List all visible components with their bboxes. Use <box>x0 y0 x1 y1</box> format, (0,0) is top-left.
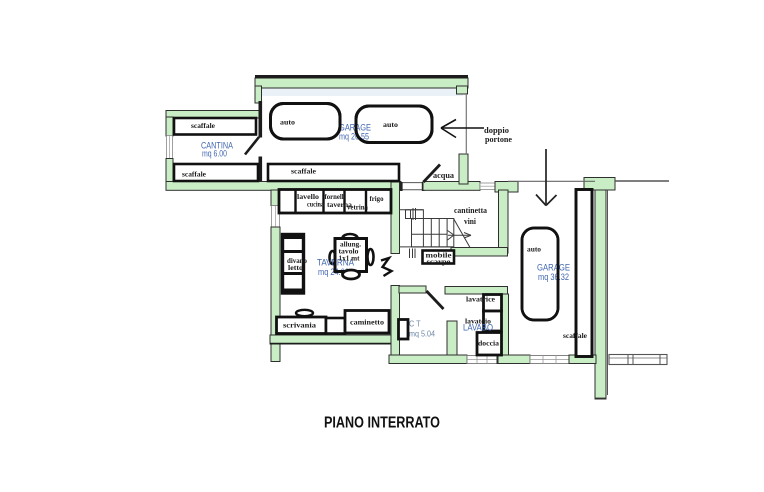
svg-text:mq 5.04: mq 5.04 <box>409 328 435 338</box>
svg-text:acqua: acqua <box>433 170 455 180</box>
svg-text:auto: auto <box>527 245 541 254</box>
svg-text:cucina: cucina <box>307 200 324 208</box>
svg-text:scarpe: scarpe <box>427 257 452 266</box>
svg-text:letto: letto <box>288 264 303 272</box>
svg-text:auto: auto <box>280 118 295 127</box>
svg-text:vetrina: vetrina <box>347 203 368 211</box>
svg-text:scaffale: scaffale <box>182 170 207 179</box>
svg-text:lavatrice: lavatrice <box>466 296 495 304</box>
svg-text:1x1 mt: 1x1 mt <box>339 254 361 262</box>
svg-text:LAVABO: LAVABO <box>463 323 493 333</box>
svg-text:fornelli: fornelli <box>325 193 346 201</box>
svg-text:PIANO INTERRATO: PIANO INTERRATO <box>324 415 440 432</box>
svg-text:scaffale: scaffale <box>291 167 317 176</box>
svg-text:vini: vini <box>464 216 477 226</box>
svg-text:GARAGE: GARAGE <box>537 263 570 273</box>
svg-text:mq 36.32: mq 36.32 <box>538 272 569 282</box>
svg-text:scaffale: scaffale <box>191 121 216 130</box>
svg-text:scrivania: scrivania <box>283 320 316 329</box>
svg-text:mq 26.55: mq 26.55 <box>339 132 369 142</box>
svg-text:caminetto: caminetto <box>350 317 384 326</box>
svg-text:C T: C T <box>409 319 421 329</box>
svg-text:portone: portone <box>485 134 512 144</box>
svg-text:cantinetta: cantinetta <box>454 205 488 215</box>
svg-text:auto: auto <box>383 120 398 129</box>
svg-text:mq 6.00: mq 6.00 <box>202 149 227 159</box>
svg-text:frigo: frigo <box>370 195 384 203</box>
svg-text:doccia: doccia <box>478 339 499 347</box>
